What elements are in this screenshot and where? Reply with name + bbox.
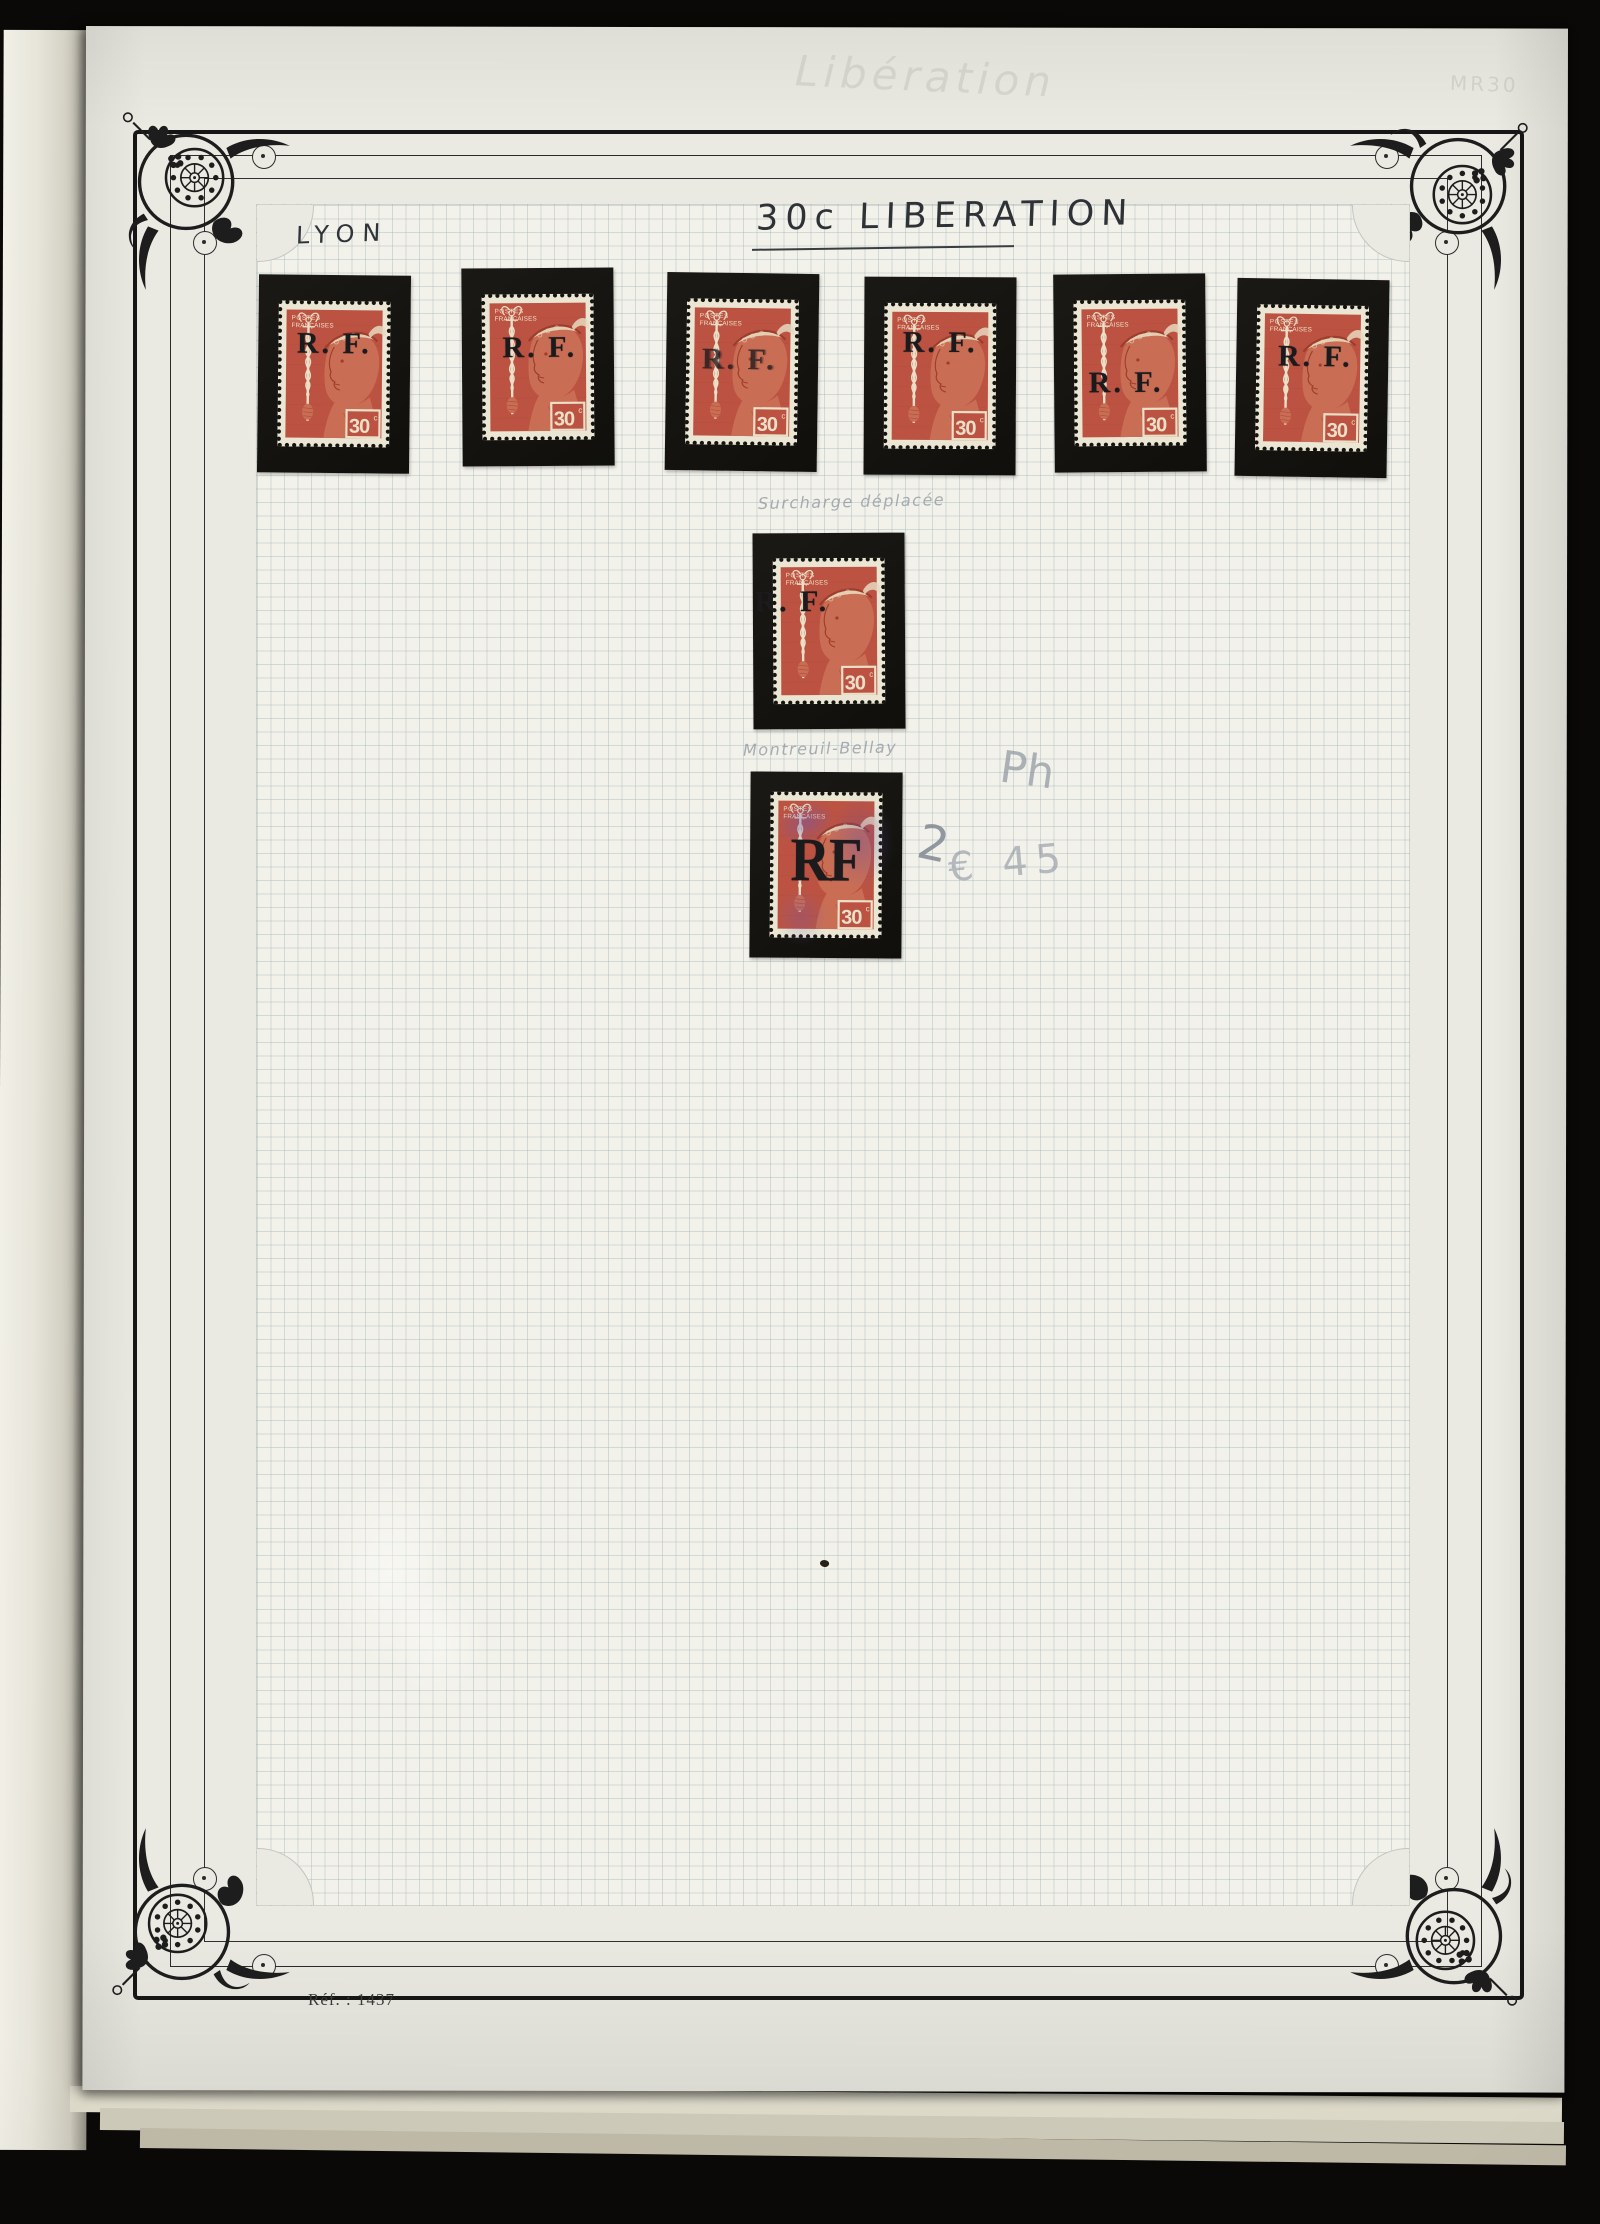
margin-note-top-right: MR30 — [1450, 71, 1519, 97]
grid-corner-mask — [1352, 204, 1410, 262]
rf-overprint: R. F. — [903, 326, 978, 360]
ref-number: Réf. : 1437 — [308, 1990, 395, 2010]
mercury-stamp: R. F. — [277, 300, 391, 447]
region-label-lyon: LYON — [296, 218, 389, 249]
rf-overprint: R. F. — [754, 585, 829, 619]
grid-corner-mask — [1352, 1848, 1410, 1906]
grid-corner-mask — [256, 1848, 314, 1906]
stamp-mount-3: R. F. — [665, 272, 820, 472]
mercury-stamp: R. F. — [685, 298, 799, 446]
rf-overprint: R. F. — [702, 343, 777, 378]
note-surcharge-deplacee: Surcharge déplacée — [758, 490, 946, 513]
stamp-mount-1: R. F. — [257, 274, 411, 474]
rf-overprint: R. F. — [297, 327, 372, 362]
rf-overprint: R. F. — [1089, 366, 1164, 401]
facing-page-edge — [0, 30, 94, 2150]
pencil-note-ph: Ph — [997, 741, 1058, 799]
rf-overprint: R. F. — [1278, 340, 1353, 375]
stamp-mount-6: R. F. — [1234, 278, 1389, 478]
stamp-mount-5: R. F. — [1053, 273, 1207, 472]
mercury-stamp: R. F. — [1255, 304, 1369, 452]
paper-smudge — [390, 1580, 485, 1700]
stamp-mount-2: R. F. — [461, 267, 614, 466]
stamp-mount-4: R. F. — [863, 277, 1016, 476]
mercury-stamp: RF — [769, 792, 882, 939]
rf-large-overprint: RF — [790, 825, 861, 896]
mercury-stamp: R. F. — [1073, 300, 1186, 447]
page-title: 30c LIBERATION — [755, 193, 1135, 238]
album-page-photo: Libération MR30 30c LIBERATION LYON R. F… — [0, 0, 1600, 2224]
mercury-stamp: R. F. — [481, 294, 594, 441]
rf-overprint: R. F. — [502, 331, 577, 366]
note-montreuil-bellay: Montreuil-Bellay — [743, 737, 898, 759]
mercury-stamp: R. F. — [884, 303, 997, 450]
mercury-stamp: R. F. — [773, 558, 886, 705]
stamp-mount-montreuil: RF — [749, 771, 902, 958]
stamp-mount-shifted: R. F. — [752, 533, 905, 730]
